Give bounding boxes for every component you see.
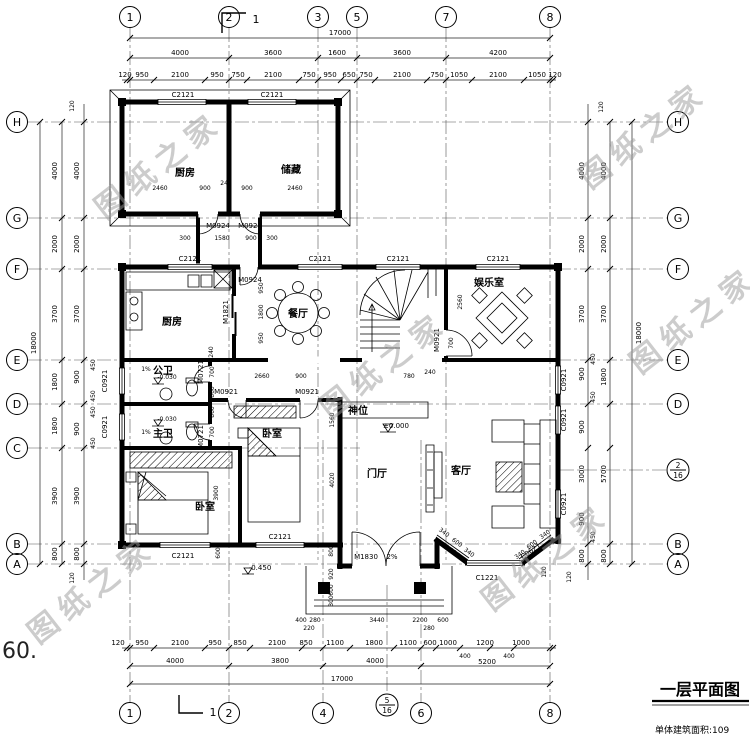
axis-label: F bbox=[14, 263, 20, 276]
dim: 3600 bbox=[264, 49, 282, 57]
dim: 240 bbox=[220, 180, 232, 187]
dim: 400 bbox=[503, 653, 515, 660]
window-label: C2121 bbox=[172, 91, 195, 99]
level-label: ±0.000 bbox=[383, 422, 409, 430]
dim: 3700 bbox=[51, 305, 59, 323]
section-mark-top: 1 bbox=[253, 13, 260, 26]
bottom-dimensions: 120 950 2100 950 850 2100 850 1100 1800 … bbox=[111, 639, 530, 683]
dim: 120 bbox=[598, 101, 605, 113]
dim: 4000 bbox=[166, 657, 184, 665]
axis-label: A bbox=[13, 558, 21, 571]
dim: 950 bbox=[208, 639, 221, 647]
window-label: C0921 bbox=[560, 369, 568, 392]
dim: 2100 bbox=[393, 71, 411, 79]
dim: 2200 bbox=[412, 617, 427, 624]
dim: 2000 bbox=[51, 235, 59, 253]
dim: 2100 bbox=[268, 639, 286, 647]
dim: 1100 bbox=[326, 639, 344, 647]
dim: 450 bbox=[90, 390, 97, 402]
slope-label: 2% bbox=[386, 553, 397, 561]
dim: 2000 bbox=[600, 235, 608, 253]
dim: 300 bbox=[179, 235, 191, 242]
dim: 900 bbox=[73, 422, 81, 435]
dim: 950 bbox=[135, 639, 148, 647]
dim: 4000 bbox=[366, 657, 384, 665]
dim: 900 bbox=[241, 185, 253, 192]
axis-label: G bbox=[674, 212, 683, 225]
dim: 700 bbox=[448, 337, 455, 349]
dim: 2100 bbox=[264, 71, 282, 79]
axis-label: 6 bbox=[418, 707, 425, 720]
dim: 750 bbox=[430, 71, 443, 79]
dim: 120 bbox=[566, 571, 573, 583]
dim: 450 bbox=[90, 406, 97, 418]
dim: 950 bbox=[323, 71, 336, 79]
dim: 2460 bbox=[287, 185, 302, 192]
dim: 2660 bbox=[254, 373, 269, 380]
porch-column bbox=[414, 582, 426, 594]
window-label: C2121 bbox=[269, 533, 292, 541]
dim: 1200 bbox=[476, 639, 494, 647]
dim: 1000 bbox=[439, 639, 457, 647]
dim: 3700 bbox=[578, 305, 586, 323]
dim: 860 bbox=[209, 406, 216, 418]
door-label: M0921 bbox=[214, 388, 238, 396]
dim: 950 bbox=[210, 71, 223, 79]
dim: 920 bbox=[328, 568, 335, 580]
dim: 600 bbox=[437, 617, 449, 624]
axis-detail-label: 2 bbox=[676, 461, 681, 470]
dim: 1000 bbox=[512, 639, 530, 647]
window-label: C0921 bbox=[560, 409, 568, 432]
dim: 450 bbox=[90, 359, 97, 371]
room-label-bedroom: 卧室 bbox=[262, 427, 282, 440]
dim: 860 bbox=[209, 386, 216, 398]
axis-label: B bbox=[13, 538, 21, 551]
axis-label: B bbox=[674, 538, 682, 551]
axis-label: 1 bbox=[127, 11, 134, 24]
watermark: 图纸之家 bbox=[623, 260, 750, 381]
dim: 1800 bbox=[365, 639, 383, 647]
axis-label: 3 bbox=[315, 11, 322, 24]
window-label: C0921 bbox=[560, 493, 568, 516]
dim: 4200 bbox=[489, 49, 507, 57]
axis-detail-label: 5 bbox=[385, 696, 390, 705]
axis-detail-label: 16 bbox=[382, 706, 392, 715]
level-label: -0.030 bbox=[157, 416, 177, 423]
slope-label: 1% bbox=[141, 429, 151, 436]
title-block: 一层平面图 单体建筑面积:109 60. bbox=[2, 639, 749, 736]
dim: 120 bbox=[548, 71, 561, 79]
washbasin bbox=[160, 388, 172, 400]
axis-label: A bbox=[674, 558, 682, 571]
slope-label: 1% bbox=[141, 366, 151, 373]
screen-partition bbox=[426, 445, 434, 512]
bed bbox=[238, 428, 300, 522]
dim: 4000 bbox=[171, 49, 189, 57]
dim: 5700 bbox=[600, 465, 608, 483]
axis-label: 1 bbox=[127, 707, 134, 720]
dim: 950 bbox=[258, 332, 265, 344]
dim: 300 bbox=[266, 235, 278, 242]
dim: 4000 bbox=[73, 162, 81, 180]
dim: 280 bbox=[423, 625, 435, 632]
dim: 700 bbox=[209, 426, 216, 438]
top-dimensions: 17000 4000 3600 1600 3600 4200 120 950 2… bbox=[118, 29, 561, 79]
dim: 280 bbox=[309, 617, 321, 624]
window-label: C2121 bbox=[179, 255, 202, 263]
dim: 600 bbox=[328, 584, 335, 596]
door-label: M1821 bbox=[222, 300, 230, 324]
dim: 850 bbox=[233, 639, 246, 647]
dim: 1600 bbox=[328, 49, 346, 57]
dim-top-total: 17000 bbox=[329, 29, 351, 37]
axis-label: D bbox=[674, 398, 682, 411]
page-note: 60. bbox=[2, 639, 37, 664]
dim: 600 bbox=[423, 639, 436, 647]
dim: 750 bbox=[231, 71, 244, 79]
dim: 1800 bbox=[258, 304, 265, 319]
dim: 800 bbox=[600, 549, 608, 562]
axis-label: 2 bbox=[226, 707, 233, 720]
dim: 2100 bbox=[171, 71, 189, 79]
room-label-living: 客厅 bbox=[450, 464, 471, 477]
dim: 850 bbox=[299, 639, 312, 647]
dim: 900 bbox=[578, 420, 586, 433]
axis-label: D bbox=[13, 398, 21, 411]
dim: 3900 bbox=[213, 485, 220, 500]
dim: 3440 bbox=[369, 617, 384, 624]
dim: 750 bbox=[302, 71, 315, 79]
door-label: M0921 bbox=[295, 388, 319, 396]
wardrobe bbox=[130, 452, 232, 468]
dim-left-total: 18000 bbox=[30, 332, 38, 354]
dim: 2000 bbox=[73, 235, 81, 253]
dim: 1050 bbox=[450, 71, 468, 79]
dim: 120 bbox=[111, 639, 124, 647]
dim: 3800 bbox=[271, 657, 289, 665]
section-mark-bottom: 1 bbox=[210, 706, 217, 719]
watermark: 图纸之家 bbox=[313, 305, 454, 426]
level-label: -0.030 bbox=[157, 374, 177, 381]
dim: 300 bbox=[328, 595, 335, 607]
room-label-master-bath: 主卫 bbox=[153, 427, 173, 440]
dim: 450 bbox=[590, 353, 597, 365]
dim: 900 bbox=[245, 235, 257, 242]
watermark: 图纸之家 bbox=[573, 75, 714, 196]
door-label: M0721 bbox=[197, 425, 205, 449]
window-label: C2121 bbox=[309, 255, 332, 263]
floor-plan-drawing: 17000 4000 3600 1600 3600 4200 120 950 2… bbox=[0, 0, 750, 736]
dim: 120 bbox=[118, 71, 131, 79]
dim: 3900 bbox=[51, 487, 59, 505]
level-label: -0.450 bbox=[249, 564, 272, 572]
dim: 2000 bbox=[578, 235, 586, 253]
dim: 3700 bbox=[73, 305, 81, 323]
dim: 340 bbox=[437, 527, 451, 540]
dim: 1050 bbox=[528, 71, 546, 79]
dim: 600 bbox=[215, 547, 222, 559]
dim: 400 bbox=[459, 653, 471, 660]
dim: 240 bbox=[208, 346, 215, 358]
watermark: 图纸之家 bbox=[475, 497, 616, 618]
dim: 2100 bbox=[489, 71, 507, 79]
axis-label: C bbox=[13, 442, 21, 455]
dim: 2560 bbox=[457, 294, 464, 309]
room-label-kitchen: 厨房 bbox=[162, 315, 182, 328]
drawing-title: 一层平面图 bbox=[660, 680, 740, 699]
dim: 1800 bbox=[600, 368, 608, 386]
axis-bubbles: 1 2 3 5 7 8 1 2 4 6 8 5 16 H G F E D C B… bbox=[7, 7, 690, 724]
dim-bottom-total: 17000 bbox=[331, 675, 353, 683]
dim: 4020 bbox=[329, 472, 336, 487]
dim: 800 bbox=[328, 545, 335, 557]
room-label-dining: 餐厅 bbox=[287, 307, 308, 320]
window-label: C2121 bbox=[261, 91, 284, 99]
door-label: M0924 bbox=[238, 222, 262, 230]
axis-label: E bbox=[14, 354, 21, 367]
dim: 120 bbox=[69, 100, 76, 112]
dim: 750 bbox=[359, 71, 372, 79]
tv-cabinet bbox=[434, 452, 442, 498]
dim: 3000 bbox=[578, 465, 586, 483]
dim: 650 bbox=[342, 71, 355, 79]
dim: 900 bbox=[73, 370, 81, 383]
room-label-entertainment: 娱乐室 bbox=[474, 276, 504, 289]
dim: 2100 bbox=[171, 639, 189, 647]
dim: 800 bbox=[51, 547, 59, 560]
dim: 900 bbox=[295, 373, 307, 380]
axis-detail-label: 16 bbox=[673, 471, 683, 480]
dim: 3700 bbox=[600, 305, 608, 323]
dim: 780 bbox=[403, 373, 415, 380]
toilet bbox=[187, 380, 198, 396]
coffee-table bbox=[496, 462, 522, 492]
dim: 3600 bbox=[393, 49, 411, 57]
window-label: C2121 bbox=[387, 255, 410, 263]
floor-plan-page: { "meta":{"note_left":"60.","title":"一层平… bbox=[0, 0, 750, 736]
dim: 900 bbox=[578, 367, 586, 380]
wardrobe bbox=[234, 406, 296, 418]
door-label: M0721 bbox=[197, 360, 205, 384]
dim: 450 bbox=[90, 437, 97, 449]
dim: 4000 bbox=[51, 162, 59, 180]
door-label: M0924 bbox=[206, 222, 230, 230]
axis-label: 8 bbox=[547, 11, 554, 24]
dim: 450 bbox=[590, 391, 597, 403]
watermark: 图纸之家 bbox=[21, 530, 162, 651]
dim: 3900 bbox=[73, 487, 81, 505]
axis-label: G bbox=[13, 212, 22, 225]
watermark: 图纸之家 bbox=[88, 105, 229, 226]
dim: 5200 bbox=[478, 658, 496, 666]
dim: 220 bbox=[303, 625, 315, 632]
area-note: 单体建筑面积:109 bbox=[655, 724, 729, 736]
window-label: C0921 bbox=[101, 370, 109, 393]
window-label: C2121 bbox=[487, 255, 510, 263]
dim: 240 bbox=[424, 369, 436, 376]
room-label-storage: 储藏 bbox=[280, 163, 301, 176]
mahjong-table bbox=[476, 292, 528, 344]
dim: 1800 bbox=[51, 373, 59, 391]
axis-label: 8 bbox=[547, 707, 554, 720]
room-label-foyer: 门厅 bbox=[367, 467, 387, 480]
dim: 1100 bbox=[399, 639, 417, 647]
room-label-bedroom: 卧室 bbox=[195, 500, 215, 513]
dim: 700 bbox=[209, 366, 216, 378]
dim: 950 bbox=[135, 71, 148, 79]
axis-label: 7 bbox=[443, 11, 450, 24]
window-label: C0921 bbox=[101, 416, 109, 439]
axis-label: H bbox=[13, 116, 21, 129]
axis-label: 4 bbox=[320, 707, 327, 720]
window-label: C2121 bbox=[172, 552, 195, 560]
axis-label: 5 bbox=[354, 11, 361, 24]
dim: 900 bbox=[199, 185, 211, 192]
dim: 800 bbox=[73, 547, 81, 560]
axis-label: F bbox=[675, 263, 681, 276]
door-label: M1830 bbox=[354, 553, 378, 561]
dim: 1580 bbox=[214, 235, 229, 242]
dim: 950 bbox=[258, 282, 265, 294]
dim: 400 bbox=[295, 617, 307, 624]
dim: 1800 bbox=[51, 417, 59, 435]
